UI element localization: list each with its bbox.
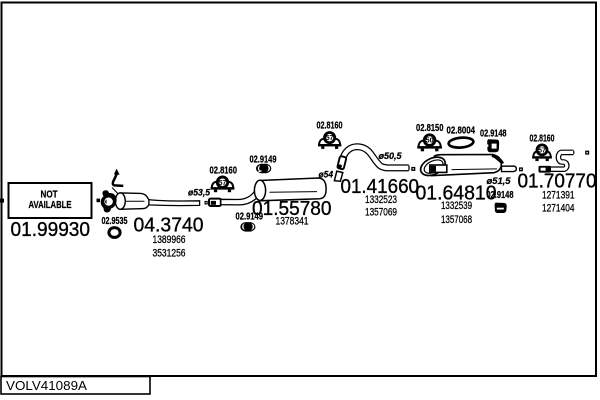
svg-text:1332539: 1332539 [441, 200, 472, 212]
svg-text:02.8150: 02.8150 [416, 123, 444, 134]
svg-text:ø50,5: ø50,5 [379, 151, 403, 161]
svg-text:02.8004: 02.8004 [447, 126, 476, 137]
svg-text:AVAILABLE: AVAILABLE [29, 200, 72, 211]
svg-text:NOT: NOT [41, 190, 58, 201]
svg-text:02.8160: 02.8160 [317, 120, 343, 131]
svg-text:57: 57 [326, 135, 334, 142]
svg-text:02.9149: 02.9149 [250, 154, 277, 165]
svg-text:50: 50 [426, 138, 434, 145]
svg-text:02.9535: 02.9535 [102, 216, 128, 227]
svg-text:ø53,5: ø53,5 [188, 188, 211, 198]
svg-text:1378341: 1378341 [276, 215, 309, 227]
svg-text:02.8160: 02.8160 [530, 134, 555, 145]
svg-text:02.8160: 02.8160 [210, 166, 238, 177]
svg-text:02.9148: 02.9148 [480, 129, 507, 140]
svg-text:ø54: ø54 [319, 170, 334, 180]
svg-text:VOLV41089A: VOLV41089A [6, 379, 88, 393]
svg-text:57: 57 [538, 148, 546, 155]
svg-text:1357068: 1357068 [441, 214, 472, 226]
svg-text:1271391: 1271391 [542, 189, 575, 201]
svg-text:1357069: 1357069 [365, 207, 397, 219]
svg-text:57: 57 [219, 180, 227, 187]
svg-text:3531256: 3531256 [153, 248, 186, 260]
svg-text:1332523: 1332523 [365, 194, 397, 206]
svg-text:1271404: 1271404 [542, 203, 575, 215]
svg-text:01.99930: 01.99930 [11, 219, 91, 241]
svg-text:1389966: 1389966 [153, 234, 186, 246]
